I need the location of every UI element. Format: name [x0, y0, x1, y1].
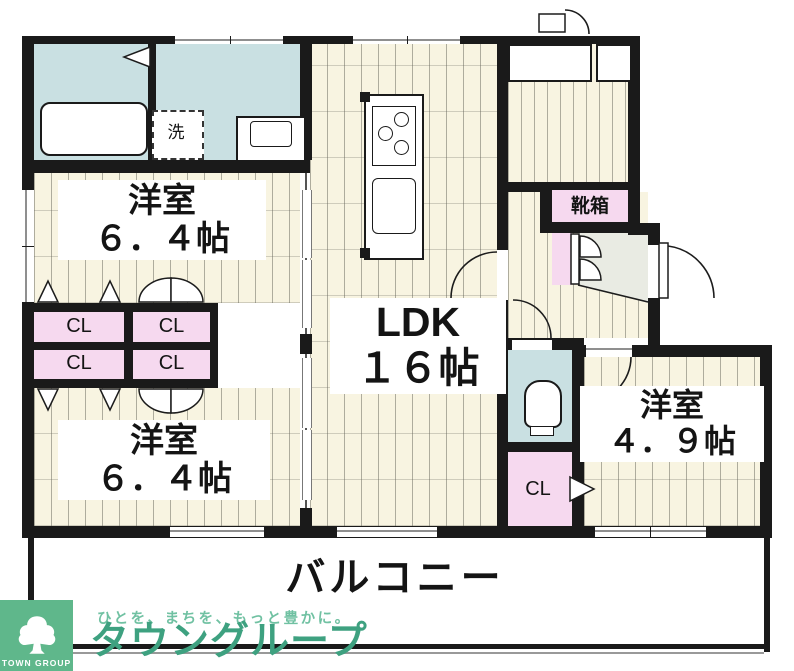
closet-door-fan: [139, 389, 171, 413]
closet-door-fan: [139, 278, 171, 302]
entry-door-arc: [668, 246, 714, 298]
service-room-door-leaf: [539, 14, 565, 32]
closet-folding-door: [100, 281, 120, 302]
washing-machine-label: 洗: [152, 123, 200, 142]
balcony-label: バルコニー: [240, 556, 550, 601]
closet-folding-door: [38, 281, 58, 302]
room-name: 洋室: [64, 422, 264, 460]
entry-door-leaf: [659, 243, 668, 298]
closet-folding-door: [38, 389, 58, 410]
closet-label: CL: [34, 352, 124, 374]
bedroom-top-left-label: 洋室 ６．４帖: [58, 180, 266, 260]
bedroom-right-label: 洋室 ４．９帖: [580, 386, 764, 462]
brand-name: タウングループ: [90, 622, 368, 661]
service-room-door-arc: [565, 10, 589, 34]
closet-label: CL: [133, 352, 210, 374]
entry-closet-fan: [580, 259, 601, 280]
room-name: LDK: [336, 300, 500, 346]
shoe-box-label: 靴箱: [552, 196, 628, 217]
room-size: ６．４帖: [64, 220, 260, 258]
logo-badge-text: TOWN GROUP: [2, 658, 71, 671]
closet-door-fan: [171, 278, 203, 302]
ldk-door-arc: [451, 252, 497, 298]
closet-label: CL: [34, 315, 124, 337]
bathroom-folding-door: [124, 47, 150, 67]
toilet-closet-folding-door: [570, 477, 594, 501]
ldk-label: LDK １６帖: [330, 298, 506, 394]
room-size: ６．４帖: [64, 460, 264, 498]
room-size: ４．９帖: [586, 424, 758, 460]
toilet-door-arc: [513, 300, 551, 338]
entry-closet-door-leaf: [571, 234, 579, 284]
entry-genkan-step-line: [578, 285, 648, 302]
room-name: 洋室: [586, 388, 758, 424]
closet-folding-door: [100, 389, 120, 410]
closet-door-fan: [171, 389, 203, 413]
floorplan-canvas: 洋室 ６．４帖 LDK １６帖 洋室 ６．４帖 洋室 ４．９帖 バルコニー CL…: [0, 0, 794, 671]
town-group-logo: TOWN GROUP: [0, 600, 73, 671]
room-size: １６帖: [336, 346, 500, 392]
bedroom-bottom-left-label: 洋室 ６．４帖: [58, 420, 270, 500]
toilet-closet-label: CL: [508, 478, 568, 500]
entry-closet-fan: [580, 236, 601, 257]
tree-icon: [15, 613, 59, 657]
closet-label: CL: [133, 315, 210, 337]
room-name: 洋室: [64, 182, 260, 220]
